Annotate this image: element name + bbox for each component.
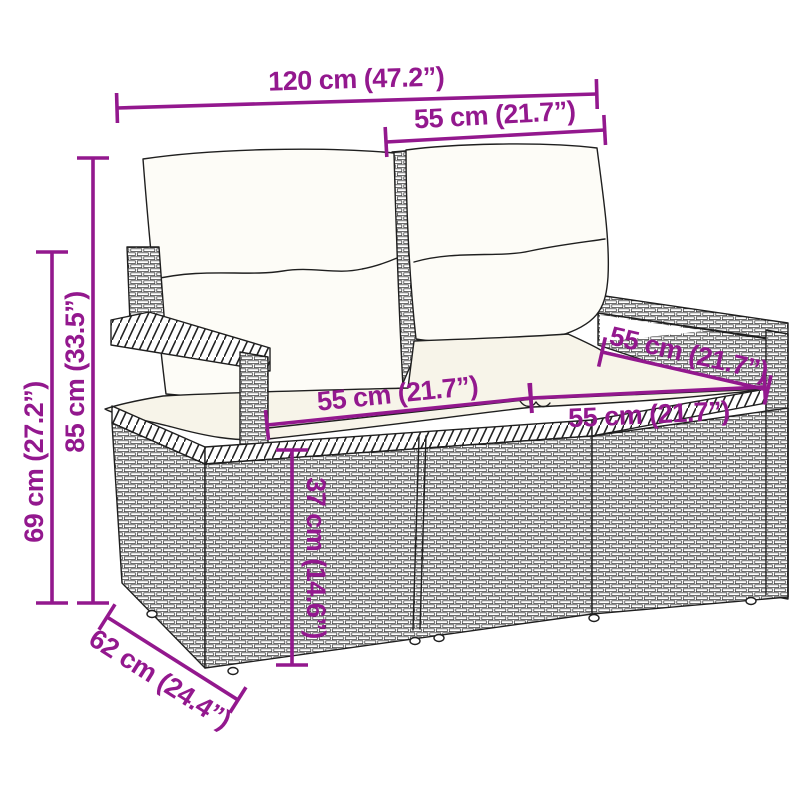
furniture-dimension-diagram: 120 cm (47.2”) 55 cm (21.7”) 85 cm (33.5…: [0, 0, 800, 800]
base-left-panel: [112, 423, 205, 668]
dim-armrest-height-label: 69 cm (27.2”): [19, 381, 49, 543]
dim-cap: [385, 127, 387, 157]
dim-cap: [596, 79, 597, 109]
dim-total-height: 85 cm (33.5”): [60, 158, 109, 603]
base-right-panel: [592, 408, 788, 614]
dim-total-height-label: 85 cm (33.5”): [60, 291, 90, 453]
sofa-foot: [228, 668, 238, 675]
sofa-foot: [746, 598, 756, 605]
back-cushion-left: [143, 149, 403, 396]
base-front-panel: [205, 436, 592, 668]
sofa-foot: [434, 635, 444, 642]
dim-overall-width-label: 120 cm (47.2”): [268, 61, 445, 96]
sofa-foot: [147, 611, 157, 618]
dim-cap: [530, 383, 531, 413]
dim-backrest-width-label: 55 cm (21.7”): [413, 96, 576, 135]
sofa-foot: [410, 638, 420, 645]
dim-cap: [117, 93, 118, 123]
sofa-foot: [589, 615, 599, 622]
dim-seat-height-label: 37 cm (14.6”): [301, 477, 331, 639]
dim-cap: [604, 115, 606, 145]
